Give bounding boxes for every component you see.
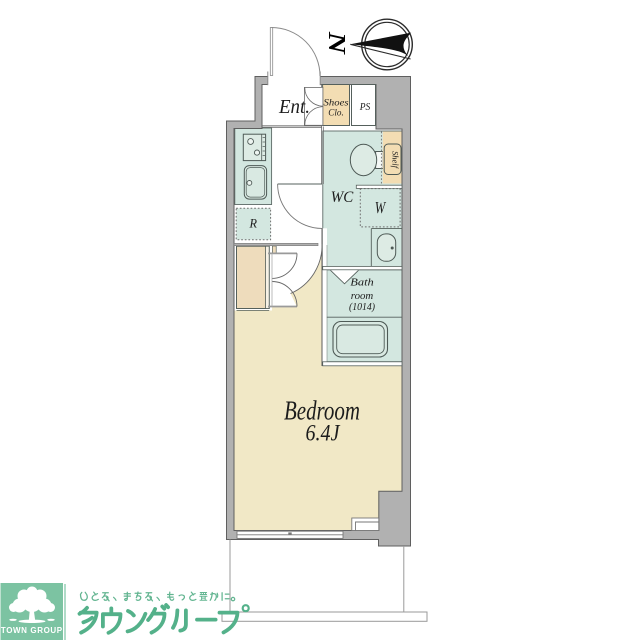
svg-text:(1014): (1014) — [349, 301, 375, 313]
svg-text:Bath: Bath — [350, 277, 374, 289]
svg-text:Ent.: Ent. — [278, 96, 310, 118]
svg-text:PS: PS — [359, 102, 370, 113]
svg-text:TOWN GROUP: TOWN GROUP — [1, 626, 63, 635]
svg-text:Shoes: Shoes — [324, 99, 349, 109]
svg-text:Shelf: Shelf — [391, 151, 401, 170]
svg-text:6.4J: 6.4J — [306, 421, 342, 446]
svg-text:room: room — [351, 290, 374, 302]
svg-text:N: N — [324, 31, 352, 55]
svg-text:W: W — [375, 198, 386, 217]
svg-text:WC: WC — [331, 189, 354, 206]
svg-text:Clo.: Clo. — [328, 109, 344, 119]
svg-text:R: R — [249, 215, 257, 230]
